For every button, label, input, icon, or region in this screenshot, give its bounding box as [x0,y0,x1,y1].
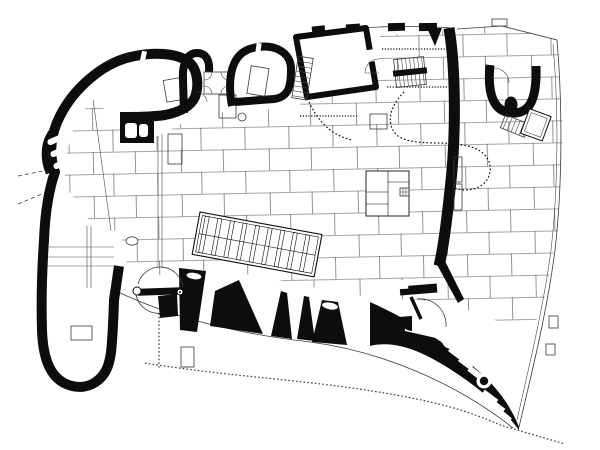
wall-dash-3 [388,23,405,32]
side-chapel-altar-dot [505,97,518,114]
floor-plan-canvas [0,0,600,450]
stoup-oval [126,237,138,245]
stub-notch [396,280,409,290]
altar-platform [366,171,409,216]
screenshot-root [0,0,600,450]
column-dot [480,377,488,385]
tower-junction [204,72,229,94]
pivot-pin [179,291,181,293]
entrance-wall-block [158,294,178,318]
hook-window-2 [139,124,148,137]
pivot-hinge-left [133,287,141,295]
hook-window-1 [125,123,137,138]
